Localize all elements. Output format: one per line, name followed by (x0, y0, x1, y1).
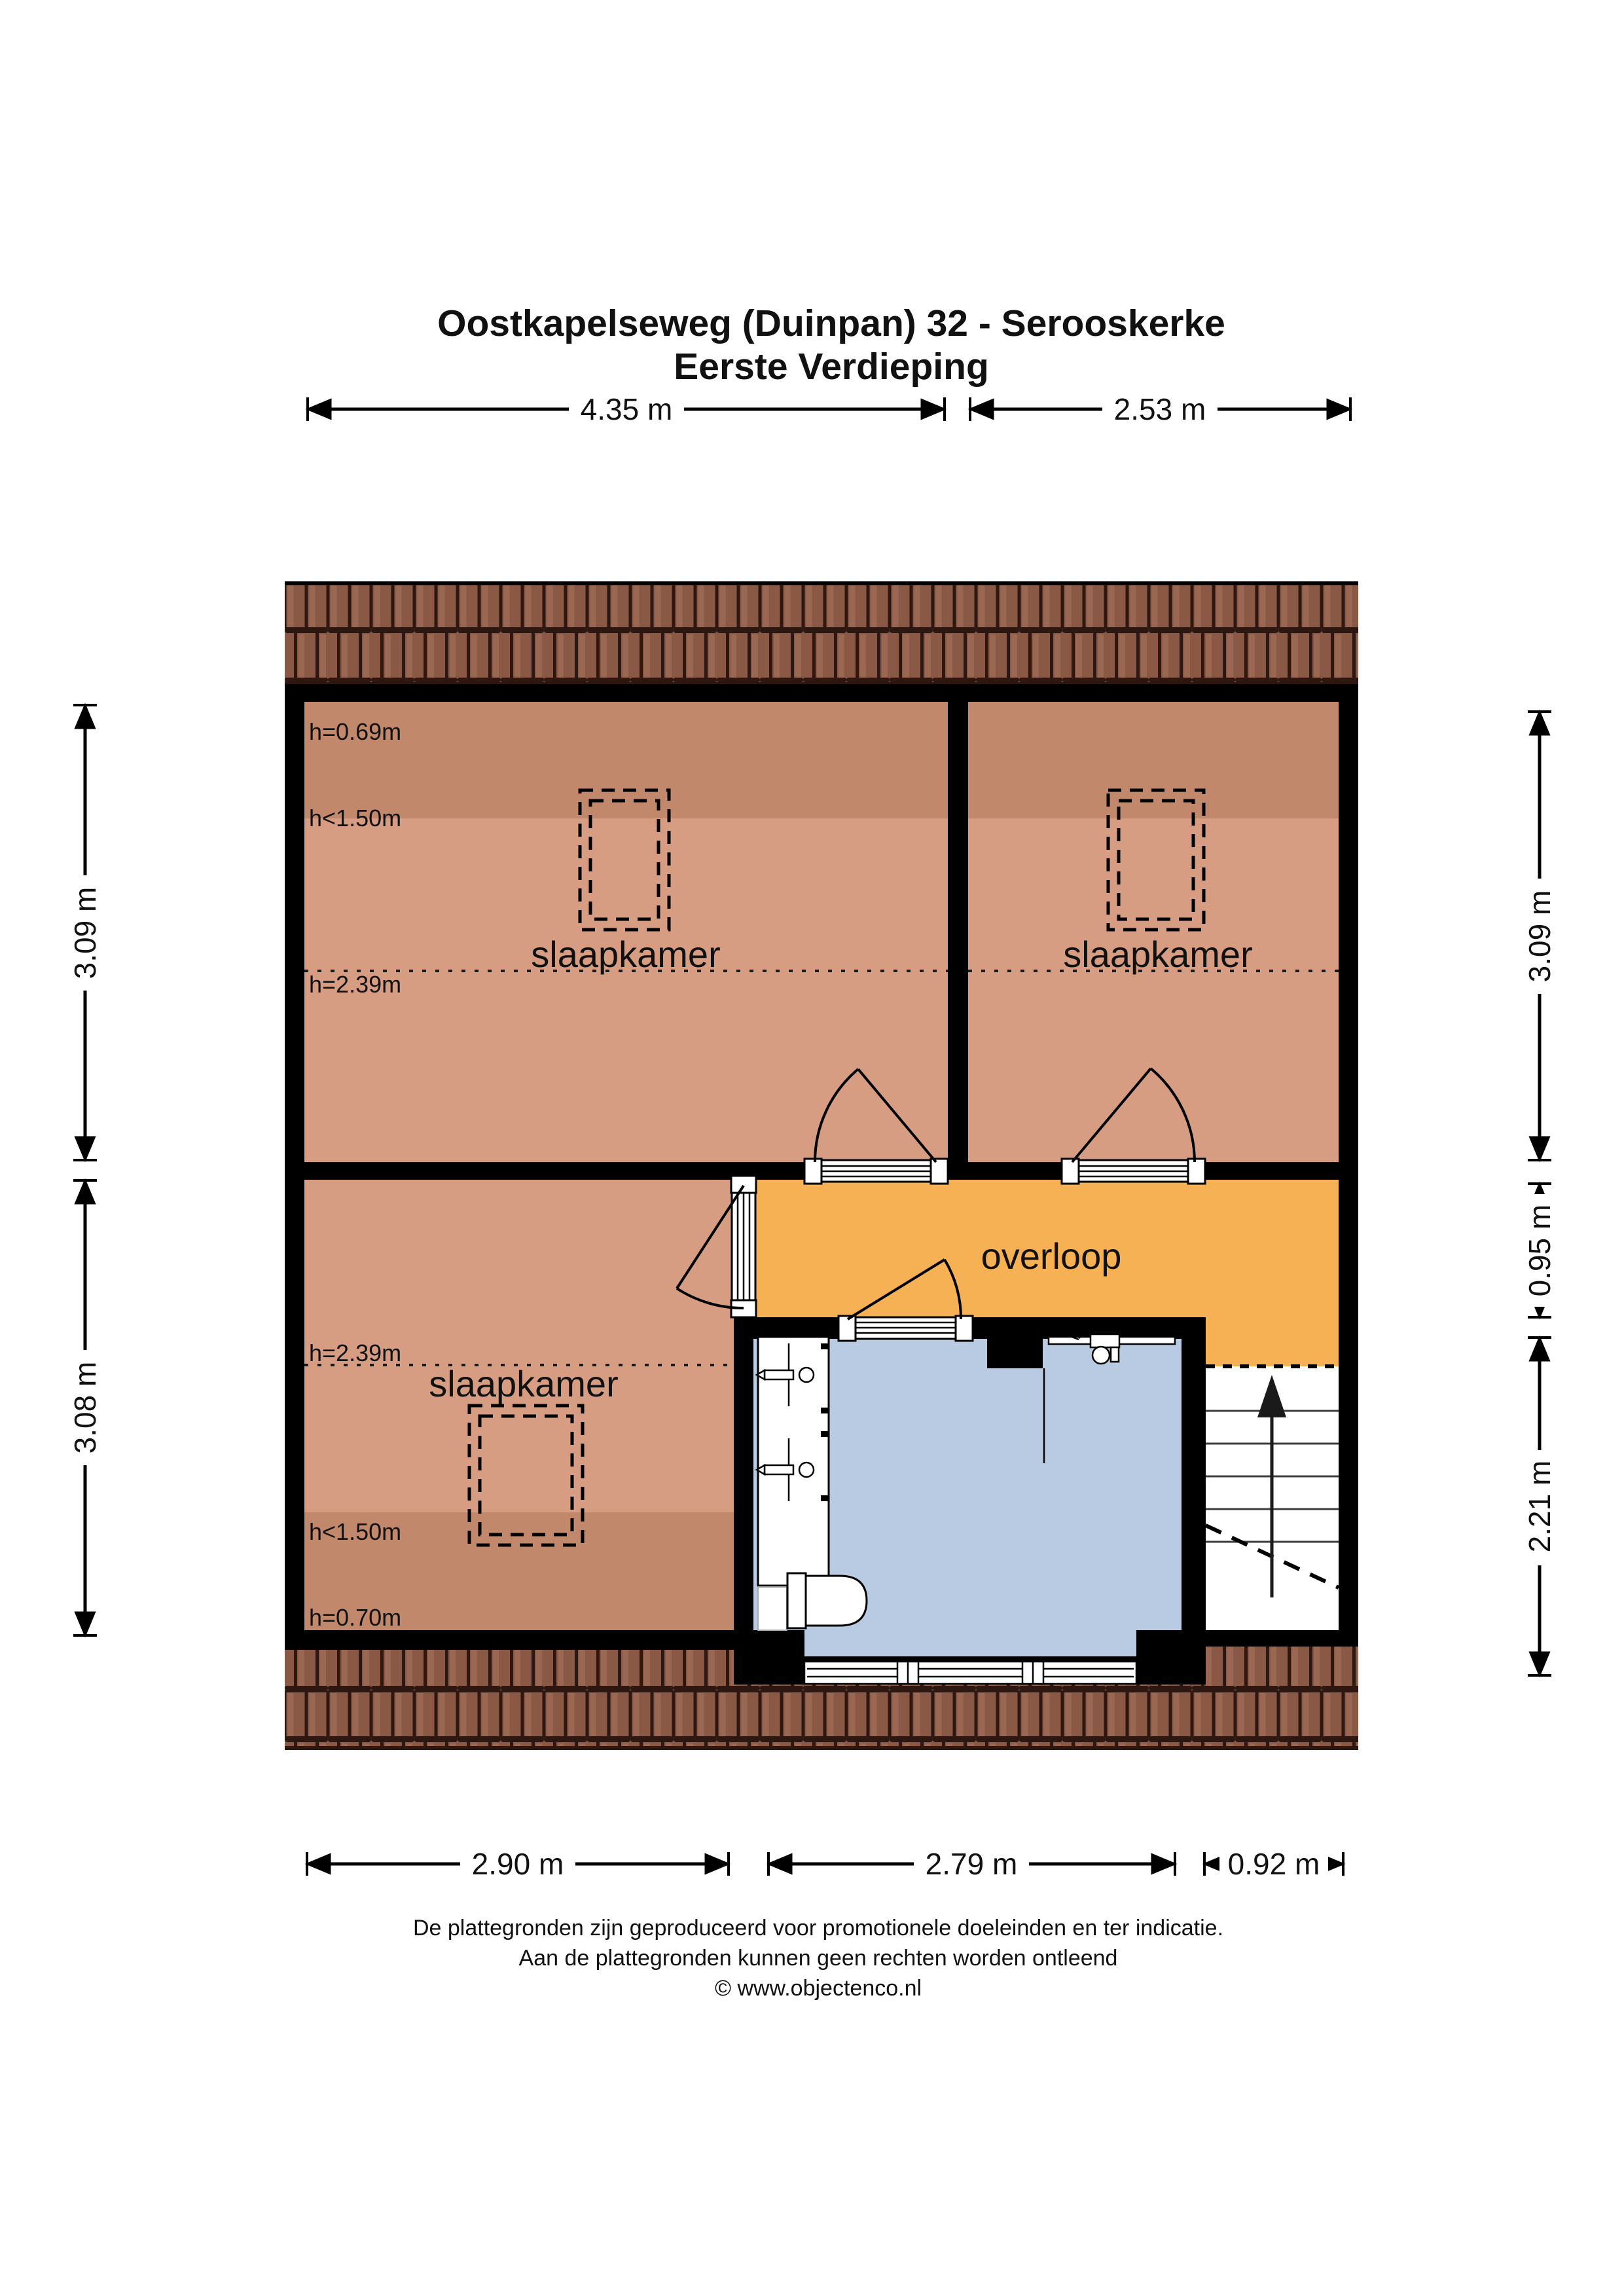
dimension-top: 4.35 m 2.53 m (308, 392, 1350, 426)
height-label-tl-mid: h<1.50m (309, 805, 401, 831)
dim-left-2: 3.08 m (68, 1362, 102, 1454)
footer-line-1: De plattegronden zijn geproduceerd voor … (413, 1916, 1223, 1941)
bathroom-window (804, 1662, 1136, 1684)
page-title: Oostkapelseweg (Duinpan) 32 - Serooskerk… (437, 302, 1225, 388)
height-label-bl-top: h=2.39m (309, 1339, 401, 1366)
dim-top-1: 4.35 m (581, 392, 673, 426)
chimney-block (987, 1331, 1043, 1368)
roof-band-top (285, 581, 1358, 684)
dim-bottom-2: 2.79 m (926, 1847, 1018, 1881)
height-label-bl-bottom: h=0.70m (309, 1604, 401, 1631)
dimension-right: 3.09 m 0.95 m 2.21 m (1523, 712, 1557, 1675)
height-label-tl-bottom: h=2.39m (309, 971, 401, 998)
title-line-1: Oostkapelseweg (Duinpan) 32 - Serooskerk… (437, 302, 1225, 344)
toilet-icon (787, 1573, 867, 1628)
room-label-landing: overloop (981, 1235, 1122, 1277)
door-threshold-bedroom-top-right (1062, 1159, 1205, 1184)
dim-right-2: 0.95 m (1523, 1205, 1557, 1297)
title-line-2: Eerste Verdieping (674, 346, 989, 388)
dim-right-1: 3.09 m (1523, 890, 1557, 983)
dimension-left: 3.09 m 3.08 m (68, 705, 102, 1635)
room-label-bedroom-top-left: slaapkamer (531, 934, 720, 975)
room-bedroom-top-left (304, 702, 948, 1162)
dimension-bottom: 2.90 m 2.79 m 0.92 m (307, 1847, 1343, 1881)
footer-line-2: Aan de plattegronden kunnen geen rechten… (519, 1946, 1118, 1971)
dim-left-1: 3.09 m (68, 887, 102, 979)
dim-top-2: 2.53 m (1114, 392, 1206, 426)
dim-bottom-3: 0.92 m (1228, 1847, 1320, 1881)
door-threshold-bedroom-top-left (804, 1159, 948, 1184)
floor-plan-canvas: Oostkapelseweg (Duinpan) 32 - Serooskerk… (0, 0, 1624, 2296)
dim-right-3: 2.21 m (1523, 1461, 1557, 1553)
room-label-bedroom-top-right: slaapkamer (1063, 934, 1252, 975)
footer-disclaimer: De plattegronden zijn geproduceerd voor … (413, 1916, 1223, 2001)
dim-bottom-1: 2.90 m (472, 1847, 564, 1881)
door-threshold-bathroom (839, 1316, 973, 1341)
room-bedroom-top-right (968, 702, 1339, 1162)
room-label-bedroom-bottom-left: slaapkamer (429, 1363, 618, 1404)
height-label-bl-mid: h<1.50m (309, 1518, 401, 1545)
footer-line-3: © www.objectenco.nl (715, 1976, 922, 2001)
height-label-tl-top: h=0.69m (309, 718, 401, 745)
floorplan-page: Oostkapelseweg (Duinpan) 32 - Serooskerk… (0, 0, 1624, 2296)
